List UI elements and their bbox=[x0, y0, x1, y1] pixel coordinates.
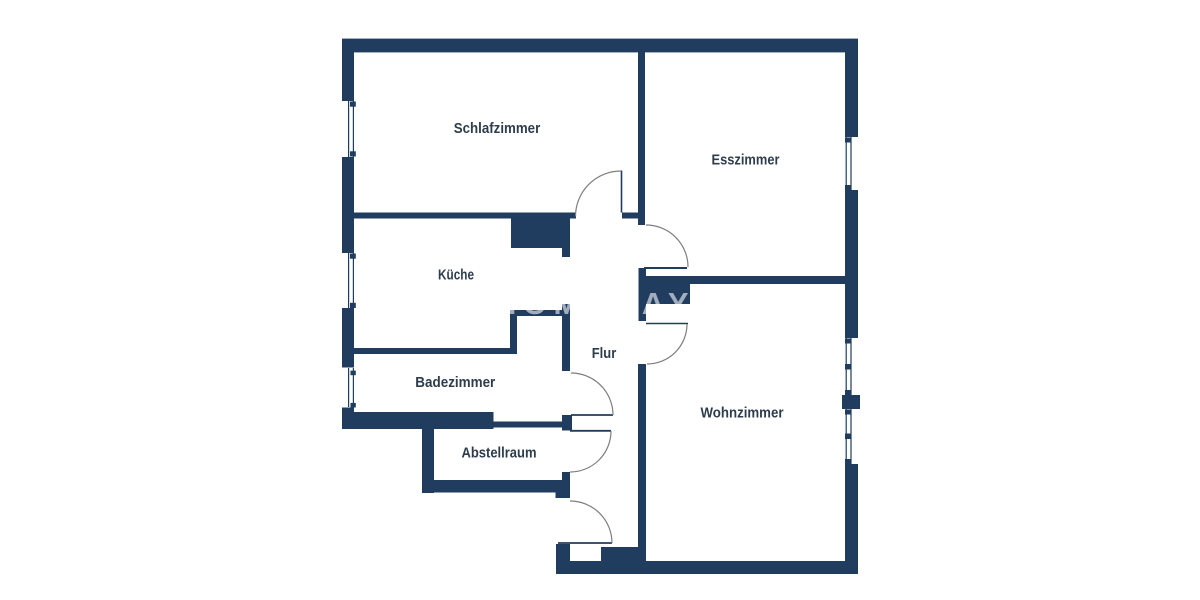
svg-text:Esszimmer: Esszimmer bbox=[712, 151, 780, 168]
svg-text:Wohnzimmer: Wohnzimmer bbox=[701, 405, 784, 422]
svg-text:Küche: Küche bbox=[438, 267, 474, 284]
svg-text:Abstellraum: Abstellraum bbox=[462, 445, 537, 462]
svg-text:HOMEDAY: HOMEDAY bbox=[494, 286, 695, 321]
svg-text:Flur: Flur bbox=[592, 345, 617, 362]
svg-text:Badezimmer: Badezimmer bbox=[415, 374, 495, 391]
svg-text:Schlafzimmer: Schlafzimmer bbox=[454, 120, 541, 137]
